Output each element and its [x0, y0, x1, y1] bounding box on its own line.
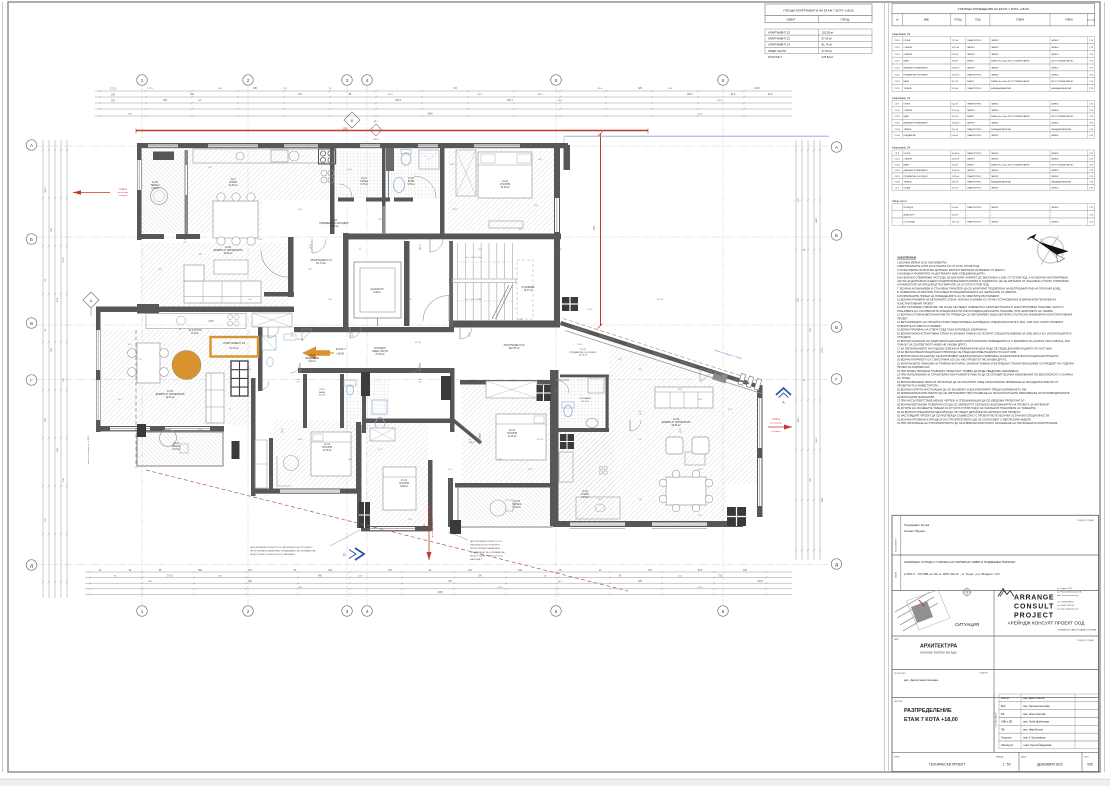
- svg-text:ЛАТЕКС: ЛАТЕКС: [1051, 53, 1059, 56]
- svg-text:21.14: 21.14: [895, 159, 901, 161]
- svg-text:ПАРКЕТ: ПАРКЕТ: [967, 66, 976, 69]
- svg-text:21.24: 21.24: [173, 443, 179, 445]
- svg-text:ЛАТЕКС: ЛАТЕКС: [1051, 73, 1059, 76]
- svg-text:Общи части: Общи части: [892, 199, 907, 203]
- svg-text:6: 6: [722, 609, 725, 614]
- svg-text:ПАРКЕТ: ПАРКЕТ: [967, 158, 976, 161]
- svg-text:3.35 м²: 3.35 м²: [952, 163, 959, 166]
- svg-text:168.1: 168.1: [497, 459, 503, 461]
- svg-text:СПАЛНЯ: СПАЛНЯ: [904, 158, 913, 161]
- svg-text:инж. К. Шоломанов: инж. К. Шоломанов: [1023, 736, 1046, 739]
- svg-text:2.70: 2.70: [1089, 116, 1093, 118]
- svg-text:4.ЗА ВИДА И РАЗМЕРИТЕ НА ДОГРА: 4.ЗА ВИДА И РАЗМЕРИТЕ НА ДОГРАМАТА ВИЖ С…: [897, 272, 986, 276]
- svg-text:ПРЕДВЕРИЕ: ПРЕДВЕРИЕ: [305, 358, 320, 360]
- svg-text:ЛАТЕКС: ЛАТЕКС: [1051, 206, 1059, 209]
- svg-text:21.26: 21.26: [895, 182, 901, 184]
- svg-text:348.5: 348.5: [45, 186, 47, 192]
- svg-text:29.06 м²: 29.06 м²: [952, 66, 960, 69]
- svg-text:ЧЕРТЕЖ: ЧЕРТЕЖ: [894, 701, 902, 703]
- svg-text:гр. София, 1111,: гр. София, 1111,: [1057, 587, 1073, 590]
- svg-text:005: 005: [1087, 763, 1093, 767]
- svg-text:5: 5: [555, 609, 558, 614]
- svg-text:ПАРКЕТ: ПАРКЕТ: [967, 121, 976, 124]
- svg-text:170.5: 170.5: [167, 576, 173, 578]
- svg-text:21.5 БАНЯ: 21.5 БАНЯ: [580, 397, 591, 400]
- svg-text:МЕТАЛНА КОНСТРУКЦИЯ И: МЕТАЛНА КОНСТРУКЦИЯ И: [470, 544, 500, 547]
- svg-text:15.ВСИЧКИ НЕКОНСТРУКТИВНИ СТЕН: 15.ВСИЧКИ НЕКОНСТРУКТИВНИ СТЕНИ И ОКАЧЕН…: [897, 331, 1072, 335]
- svg-text:3.37 м²: 3.37 м²: [952, 186, 959, 189]
- svg-text:ПОД: ПОД: [975, 19, 981, 22]
- svg-text:21.15: 21.15: [319, 389, 325, 391]
- svg-text:ПРЕДВИДЕНИ ЗА СКРИВАНЕ НА: ПРЕДВИДЕНИ ЗА СКРИВАНЕ НА: [470, 551, 505, 554]
- svg-text:3.35 м²: 3.35 м²: [407, 183, 415, 186]
- svg-text:ПАРКЕТ: ПАРКЕТ: [967, 169, 976, 172]
- svg-text:Трендафил Колев: Трендафил Колев: [904, 523, 930, 527]
- svg-text:Апартамент 24: Апартамент 24: [892, 145, 911, 149]
- svg-text:871.5: 871.5: [822, 346, 824, 352]
- svg-text:ЛАТЕКС: ЛАТЕКС: [1051, 46, 1059, 49]
- svg-text:4.40 м²: 4.40 м²: [373, 291, 381, 294]
- svg-text:20.ВСИЧКИ ПАРАПЕТИ СА С ВИСОЧИ: 20.ВСИЧКИ ПАРАПЕТИ СА С ВИСОЧИНА 105 СМ,…: [897, 358, 1007, 362]
- svg-text:14.18 м²: 14.18 м²: [579, 354, 588, 357]
- svg-text:3.17 м²: 3.17 м²: [581, 400, 588, 403]
- svg-text:ЛИСТ: ЛИСТ: [1084, 757, 1090, 759]
- svg-text:тел: 0887 903134,: тел: 0887 903134,: [1057, 605, 1075, 607]
- svg-text:ПРОЕКТАНТА И ИНВЕСТИТОРА;: ПРОЕКТАНТА И ИНВЕСТИТОРА;: [897, 384, 939, 388]
- svg-text:3405: 3405: [437, 592, 443, 594]
- svg-text:ДНЕВНА И ТРАПЕЗАРИЯ: ДНЕВНА И ТРАПЕЗАРИЯ: [904, 121, 929, 124]
- svg-text:1595: 1595: [342, 128, 348, 131]
- svg-text:9.ИЗЧИСЛЕНИТЕ ПЛОЩИ НА ПОМЕЩЕН: 9.ИЗЧИСЛЕНИТЕ ПЛОЩИ НА ПОМЕЩЕНИЯТА СА ПО…: [897, 294, 1000, 298]
- svg-text:инж. Данчо Рангов: инж. Данчо Рангов: [1023, 697, 1045, 700]
- svg-text:57.43 м²: 57.43 м²: [822, 37, 832, 41]
- svg-text:СПАЛНЯ: СПАЛНЯ: [904, 53, 913, 56]
- svg-text:АПАРТАМЕНТ 24: АПАРТАМЕНТ 24: [768, 43, 790, 47]
- svg-text:173.5: 173.5: [147, 88, 153, 90]
- svg-text:90 210: 90 210: [657, 299, 664, 301]
- svg-text:2.70: 2.70: [1089, 187, 1093, 189]
- svg-text:5.06 м: 5.06 м: [772, 417, 780, 421]
- svg-text:АПАРТАМЕНТ 23: АПАРТАМЕНТ 23: [768, 37, 790, 41]
- svg-text:ДНЕВНА И ТРАПЕЗАРИЯ: ДНЕВНА И ТРАПЕЗАРИЯ: [904, 169, 929, 172]
- svg-text:ФАСАДНА МАЗИЛКА: ФАСАДНА МАЗИЛКА: [991, 87, 1011, 90]
- svg-text:Кота пом.: Кота пом.: [1087, 20, 1096, 22]
- svg-text:6.42 м²: 6.42 м²: [191, 332, 199, 335]
- svg-text:26.ДОВЪРШИТЕЛНИТЕ РАБОТИ ДА СЕ: 26.ДОВЪРШИТЕЛНИТЕ РАБОТИ ДА СЕ ИЗПЪЛНЯВА…: [897, 391, 1070, 395]
- svg-text:6.42 м²: 6.42 м²: [952, 103, 959, 106]
- svg-text:172.5: 172.5: [110, 89, 116, 91]
- svg-text:ЛАТЕКС: ЛАТЕКС: [1051, 186, 1059, 189]
- svg-text:ПОДПИС: ПОДПИС: [979, 673, 988, 675]
- svg-text:2.70: 2.70: [1089, 54, 1093, 56]
- svg-text:8. РАЗМЕРИТЕ НА ВРАТИТЕ ПОСОЧЕ: 8. РАЗМЕРИТЕ НА ВРАТИТЕ ПОСОЧЕНИ В СПЕЦИ…: [897, 290, 1017, 294]
- svg-text:23.ПРИ ИЗПЪЛНЕНИЕ НА СТРОИТЕЛН: 23.ПРИ ИЗПЪЛНЕНИЕ НА СТРОИТЕЛНО-МОНТАЖНИ…: [897, 373, 1073, 377]
- svg-text:ЛАТЕКС: ЛАТЕКС: [991, 221, 999, 224]
- svg-text:ФАЯНС Н=2.00м, ВЛ.УСТОЙЧИВ ЛАТ: ФАЯНС Н=2.00м, ВЛ.УСТОЙЧИВ ЛАТЕКС: [991, 60, 1030, 63]
- svg-text:3400: 3400: [427, 114, 433, 116]
- svg-text:ТАВАН: ТАВАН: [1065, 19, 1073, 22]
- svg-text:2.70: 2.70: [1089, 88, 1093, 90]
- svg-text:380.3: 380.3: [537, 94, 543, 96]
- svg-text:1460: 1460: [822, 497, 824, 503]
- svg-text:инж. Рени Смесова: инж. Рени Смесова: [1023, 713, 1046, 716]
- svg-text:АСАНСЬОР: АСАНСЬОР: [904, 213, 916, 216]
- svg-text:115.5: 115.5: [597, 499, 603, 501]
- svg-text:21.15: 21.15: [895, 116, 901, 118]
- svg-text:ДАТА: ДАТА: [1021, 756, 1027, 759]
- svg-text:21.13: 21.13: [895, 54, 901, 56]
- svg-text:142.5: 142.5: [754, 88, 760, 90]
- svg-text:2.70: 2.70: [1089, 129, 1093, 131]
- svg-text:3: 3: [346, 609, 349, 614]
- svg-text:2.70: 2.70: [1089, 104, 1093, 106]
- svg-text:ПЕРФОРИРАНА ЛАМАРИНА, ПРЕДВИДЕ: ПЕРФОРИРАНА ЛАМАРИНА, ПРЕДВИДЕНИ ЗА СКРИ…: [250, 550, 316, 553]
- svg-text:2.70: 2.70: [1089, 222, 1093, 224]
- svg-text:21.22: 21.22: [895, 74, 901, 76]
- svg-text:ФАЯНС: ФАЯНС: [967, 60, 975, 63]
- svg-text:412.9: 412.9: [587, 309, 593, 311]
- svg-text:ВОДОСТОЧНИ ТРЪБИ Ч7.00 (1) НАР: ВОДОСТОЧНИ ТРЪБИ Ч7.00 (1) НАРЕДБА 7: [250, 553, 296, 556]
- svg-text:ОВК и ЕЕ: ОВК и ЕЕ: [1001, 721, 1013, 724]
- svg-text:КОНСТРУКТИВНИЯ ПРОЕКТ;: КОНСТРУКТИВНИЯ ПРОЕКТ;: [897, 301, 935, 305]
- svg-text:ФАЯНС Н=2.00м, ВЛ.УСТОЙЧИВ ЛАТ: ФАЯНС Н=2.00м, ВЛ.УСТОЙЧИВ ЛАТЕКС: [991, 80, 1030, 83]
- svg-text:Апартамент 22: Апартамент 22: [892, 32, 911, 36]
- svg-text:14.44 м²: 14.44 м²: [952, 121, 960, 124]
- svg-text:ЧАСТИ НА ДОГРАМАТА КЪДЕТО ПОДП: ЧАСТИ НА ДОГРАМАТА КЪДЕТО ПОДПРОЗОРЕЧНИЯ…: [897, 279, 1069, 283]
- svg-text:ПРОЕКТНА РАЗРАБОТКА;: ПРОЕКТНА РАЗРАБОТКА;: [897, 365, 930, 369]
- svg-text:ПАРКЕТ: ПАРКЕТ: [967, 109, 976, 112]
- svg-text:1: 1: [141, 609, 144, 614]
- svg-text:16.ВСИЧКИ НАКЛОНИ НА ХИДРОИЗОЛ: 16.ВСИЧКИ НАКЛОНИ НА ХИДРОИЗОЛАЦИОННИЯ С…: [897, 339, 1070, 343]
- svg-text:81.74 м²: 81.74 м²: [316, 261, 326, 265]
- svg-text:848.7: 848.7: [816, 216, 818, 222]
- svg-text:7.27 м²: 7.27 м²: [952, 39, 959, 42]
- svg-text:94 100: 94 100: [415, 342, 422, 344]
- svg-text:21.25: 21.25: [895, 88, 901, 90]
- svg-text:371.5: 371.5: [63, 256, 65, 262]
- svg-text:3.ТОЧНИ МЕРКИ ЗА ВСИЧКИ ДОГРАМ: 3.ТОЧНИ МЕРКИ ЗА ВСИЧКИ ДОГРАМИ, ВРАТИ И…: [897, 268, 1006, 272]
- svg-text:16.17 м²: 16.17 м²: [952, 221, 960, 224]
- svg-text:КУХНЯ: КУХНЯ: [904, 153, 911, 155]
- svg-text:ARRANGE: ARRANGE: [1014, 595, 1054, 602]
- svg-text:14.18 м²: 14.18 м²: [952, 73, 960, 76]
- svg-text:226.5: 226.5: [449, 164, 455, 166]
- svg-text:2.70: 2.70: [1089, 61, 1093, 63]
- svg-text:81.74 м²: 81.74 м²: [822, 43, 832, 47]
- svg-text:2.70: 2.70: [1089, 164, 1093, 166]
- svg-text:ВЪЗЛОЖИТЕЛ: ВЪЗЛОЖИТЕЛ: [896, 537, 898, 552]
- svg-text:ФАЯНС: ФАЯНС: [967, 163, 975, 166]
- svg-text:БАНЯ: БАНЯ: [319, 391, 325, 394]
- svg-text:ВЛ.УСТОЙЧИВ ЛАТЕКС: ВЛ.УСТОЙЧИВ ЛАТЕКС: [1051, 60, 1074, 63]
- svg-text:ГРАНИТОГРЕС: ГРАНИТОГРЕС: [967, 73, 982, 76]
- svg-text:ПЕРФОРИРАНА ЛАМАРИНА,: ПЕРФОРИРАНА ЛАМАРИНА,: [470, 547, 501, 550]
- svg-text:5: 5: [555, 78, 558, 83]
- svg-text:3.07 м²: 3.07 м²: [318, 394, 325, 397]
- svg-text:ГРАНИТОГРЕС: ГРАНИТОГРЕС: [967, 206, 982, 209]
- svg-text:ВОДОСТОЧНИ ТРЪБИ Ч7.00 (1): ВОДОСТОЧНИ ТРЪБИ Ч7.00 (1): [470, 555, 503, 557]
- svg-text:198.7: 198.7: [816, 436, 818, 442]
- svg-text:ПРЕДВЕРИЕ И КОРИДОР: ПРЕДВЕРИЕ И КОРИДОР: [570, 352, 597, 354]
- svg-text:ВиК: ВиК: [1001, 705, 1006, 708]
- svg-text:21.23: 21.23: [895, 81, 901, 83]
- svg-text:ИМЕ: ИМЕ: [924, 19, 930, 22]
- svg-text:ЛАТЕКС: ЛАТЕКС: [1051, 221, 1059, 224]
- svg-text:2: 2: [247, 78, 250, 83]
- svg-text:21.30: 21.30: [895, 135, 901, 137]
- svg-text:12.96 м²: 12.96 м²: [223, 252, 232, 255]
- svg-text:+18.00: +18.00: [336, 352, 345, 356]
- svg-text:ЛАТЕКС: ЛАТЕКС: [1051, 39, 1059, 42]
- svg-text:21.21: 21.21: [895, 176, 901, 178]
- svg-text:ТЕРАСА: ТЕРАСА: [904, 87, 912, 90]
- svg-text:ЛАТЕКС: ЛАТЕКС: [1051, 175, 1059, 178]
- svg-text:27.ПРИ НЕСЪОТВЕТСТВИЕ МЕЖДУ ЧЕ: 27.ПРИ НЕСЪОТВЕТСТВИЕ МЕЖДУ ЧЕРТЕЖ И СПЕ…: [897, 399, 1026, 403]
- svg-text:9ст. x 16.67/ 30см: 9ст. x 16.67/ 30см: [465, 299, 482, 301]
- svg-text:ЛАТЕКС: ЛАТЕКС: [1051, 134, 1059, 137]
- svg-text:21.18: 21.18: [408, 178, 414, 180]
- svg-text:102.55 м²: 102.55 м²: [822, 30, 834, 34]
- svg-text:ОБЕКТ: ОБЕКТ: [896, 571, 898, 578]
- svg-text:141.3: 141.3: [517, 319, 523, 321]
- svg-text:38.5 92: 38.5 92: [537, 439, 545, 441]
- svg-text:3.86 м²: 3.86 м²: [952, 60, 959, 63]
- svg-text:2.70: 2.70: [1089, 110, 1093, 112]
- svg-text:21.17: 21.17: [895, 61, 901, 63]
- svg-text:ОТВОРИТЕ ПО МЯСТО И РАЗМЕР;: ОТВОРИТЕ ПО МЯСТО И РАЗМЕР;: [897, 324, 942, 328]
- svg-text:ПОДПИС / ПЕЧАТ: ПОДПИС / ПЕЧАТ: [1077, 519, 1095, 522]
- svg-text:420.9: 420.9: [297, 439, 303, 441]
- svg-text:379.5: 379.5: [197, 429, 203, 431]
- svg-text:173.5: 173.5: [257, 239, 263, 241]
- svg-text:13.20 м²: 13.20 м²: [952, 158, 960, 161]
- svg-text:до граница на имота: до граница на имота: [432, 518, 434, 538]
- svg-text:11.15 м²: 11.15 м²: [508, 435, 517, 438]
- svg-text:л.арх. Ирена Йорданова: л.арх. Ирена Йорданова: [1023, 744, 1052, 747]
- svg-text:21.24: 21.24: [895, 129, 901, 131]
- svg-text:3.37 м²: 3.37 м²: [360, 183, 368, 186]
- svg-text:ул. Николай Коперник 48,: ул. Николай Коперник 48,: [1057, 590, 1082, 593]
- svg-text:web: www.acproject.bg: web: www.acproject.bg: [1057, 594, 1079, 597]
- svg-text:ЛАТЕКС: ЛАТЕКС: [991, 73, 999, 76]
- svg-text:НА ТРУДА.: НА ТРУДА.: [897, 376, 911, 380]
- svg-text:ЛАТЕКС: ЛАТЕКС: [1051, 66, 1059, 69]
- svg-text:ПЛОЩИ АПАРТАМЕНТИ НА ЕТАЖ 7 К: ПЛОЩИ АПАРТАМЕНТИ НА ЕТАЖ 7 КОТА +18,00: [783, 8, 854, 12]
- svg-text:ОБЩИ ЧАСТИ: ОБЩИ ЧАСТИ: [768, 49, 786, 53]
- svg-text:БАНЯ: БАНЯ: [904, 115, 910, 118]
- svg-text:СКЛАД: СКЛАД: [904, 186, 911, 189]
- svg-text:ЛАТЕКС: ЛАТЕКС: [991, 152, 999, 155]
- svg-text:348.5: 348.5: [798, 416, 800, 422]
- svg-text:2.70: 2.70: [1089, 81, 1093, 83]
- svg-text:142.5: 142.5: [697, 587, 703, 589]
- svg-text:ОБЕКТ: ОБЕКТ: [786, 17, 796, 21]
- svg-text:21.10: 21.10: [582, 491, 588, 493]
- svg-text:ЛАТЕКС: ЛАТЕКС: [1051, 169, 1059, 172]
- svg-text:21.20: 21.20: [895, 170, 901, 172]
- svg-text:до граница: до граница: [770, 423, 782, 425]
- svg-text:6.00 м²: 6.00 м²: [308, 360, 316, 363]
- svg-text:СЪГЛАСУВАЛИ: СЪГЛАСУВАЛИ: [995, 712, 998, 727]
- svg-text:32.ВСИЧКИ ПРОМЕНИ В ПРОЦЕСА НА: 32.ВСИЧКИ ПРОМЕНИ В ПРОЦЕСА НА СТРОИТЕЛС…: [897, 417, 1032, 421]
- svg-text:14.ВСЯКА ПРОМЯНА НА ОТВОР СЛЕД: 14.ВСЯКА ПРОМЯНА НА ОТВОР СЛЕД ТАЗИ ЗАПО…: [897, 328, 988, 332]
- svg-text:КУХНЯ: КУХНЯ: [904, 40, 911, 42]
- svg-text:601.1: 601.1: [717, 100, 723, 102]
- svg-text:168.1: 168.1: [527, 469, 533, 471]
- svg-text:ЛАТЕКС: ЛАТЕКС: [991, 53, 999, 56]
- svg-text:ЛАТЕКС: ЛАТЕКС: [1051, 109, 1059, 112]
- svg-text:308.2: 308.2: [697, 399, 703, 401]
- svg-text:КУХНЯ: КУХНЯ: [904, 104, 911, 106]
- svg-text:63.9: 63.9: [768, 94, 773, 96]
- svg-text:СКЛАД: СКЛАД: [360, 180, 368, 183]
- svg-text:ВЛ.УСТОЙЧИВ ЛАТЕКС: ВЛ.УСТОЙЧИВ ЛАТЕКС: [1051, 80, 1074, 83]
- svg-text:ЛАТЕКС: ЛАТЕКС: [991, 66, 999, 69]
- svg-text:10.48 м²: 10.48 м²: [952, 152, 960, 155]
- svg-text:21.МОНТАЖНИТЕ ПЛАНОВЕ НА ТРАЙН: 21.МОНТАЖНИТЕ ПЛАНОВЕ НА ТРАЙНИ НАСТИЛКИ…: [897, 361, 1074, 365]
- svg-text:на имота: на имота: [119, 195, 129, 197]
- svg-text:1 : 50: 1 : 50: [1003, 763, 1011, 767]
- svg-text:тел: 0878 899822,: тел: 0878 899822,: [1057, 602, 1075, 604]
- svg-text:БАНЯ: БАНЯ: [904, 60, 910, 63]
- svg-text:МАЩАБ: МАЩАБ: [996, 756, 1004, 759]
- svg-text:110.3: 110.3: [697, 469, 703, 471]
- svg-text:ДЕКЕМВРИ 2022: ДЕКЕМВРИ 2022: [1037, 763, 1063, 767]
- svg-text:АРХИТЕКТУРА: АРХИТЕКТУРА: [920, 644, 958, 650]
- svg-text:КОРИДОР: КОРИДОР: [904, 207, 914, 209]
- svg-text:ДЕКОРАТИВНИ ПИЛАСТРИ ОТ МЕТАЛН: ДЕКОРАТИВНИ ПИЛАСТРИ ОТ МЕТАЛНА КОНСТРУК…: [250, 546, 313, 549]
- svg-text:282.2: 282.2: [477, 94, 483, 96]
- svg-text:14.44 м²: 14.44 м²: [165, 396, 174, 399]
- svg-text:ФАСАДНА МАЗИЛКА: ФАСАДНА МАЗИЛКА: [991, 128, 1011, 131]
- svg-text:2: 2: [247, 609, 250, 614]
- svg-text:17.ЗА ИЗПЪЛНЕНИЕТО НА ПОДОВИ С: 17.ЗА ИЗПЪЛНЕНИЕТО НА ПОДОВИ СИФОНИ И РЕ…: [897, 346, 1053, 350]
- svg-text:28.ВСИЧКИ БЕТОНОВИ ПОВЪРХНОСТИ: 28.ВСИЧКИ БЕТОНОВИ ПОВЪРХНОСТИ ДА СЕ ОБР…: [897, 402, 1050, 406]
- svg-text:2.70: 2.70: [1089, 47, 1093, 49]
- svg-text:ПРОЕКТАНТ: ПРОЕКТАНТ: [894, 672, 907, 675]
- svg-text:ГРАНИТОГРЕС: ГРАНИТОГРЕС: [967, 103, 982, 106]
- svg-text:10.48 м²: 10.48 м²: [228, 184, 237, 187]
- svg-text:ДЕКОРАТИВНИ ПИЛАСТРИ ОТ: ДЕКОРАТИВНИ ПИЛАСТРИ ОТ: [470, 540, 503, 543]
- svg-text:СГРАДАТА;: СГРАДАТА;: [897, 335, 912, 339]
- svg-text:БАНЯ: БАНЯ: [904, 80, 910, 83]
- svg-text:ГРАНИТОГРЕС: ГРАНИТОГРЕС: [967, 87, 982, 90]
- svg-text:ТЕХНИЧЕСКИ ПРОЕКТ: ТЕХНИЧЕСКИ ПРОЕКТ: [929, 763, 965, 767]
- svg-text:3.15 м²: 3.15 м²: [952, 128, 959, 131]
- svg-text:11.76 м²: 11.76 м²: [952, 109, 960, 112]
- svg-text:13.20 м²: 13.20 м²: [500, 186, 509, 189]
- svg-text:12.65 м²: 12.65 м²: [952, 175, 960, 178]
- svg-text:ЛАТЕКС: ЛАТЕКС: [991, 158, 999, 161]
- svg-text:ПЛОЩ: ПЛОЩ: [841, 17, 850, 21]
- svg-text:ФАСАДНА МАЗИЛКА: ФАСАДНА МАЗИЛКА: [991, 181, 1011, 184]
- svg-text:УПРАВИТЕЛ: ДЕСИСЛАВА ЧОКОЕВА: УПРАВИТЕЛ: ДЕСИСЛАВА ЧОКОЕВА: [1057, 629, 1096, 632]
- svg-text:21.9 КУХНЯ: 21.9 КУХНЯ: [189, 330, 202, 332]
- svg-text:инж. Иван Вълев: инж. Иван Вълев: [1023, 729, 1043, 732]
- svg-text:25.ВСИЧКИ СКРИТИ ИНСТАЛАЦИИ ДА: 25.ВСИЧКИ СКРИТИ ИНСТАЛАЦИИ ДА СЕ ЗАСНЕМ…: [897, 387, 1027, 391]
- svg-text:НАРЕДБА 7: НАРЕДБА 7: [470, 558, 483, 561]
- svg-text:В: В: [835, 325, 838, 330]
- svg-text:2.70: 2.70: [1089, 214, 1093, 216]
- svg-text:ЛАТЕКС: ЛАТЕКС: [991, 46, 999, 49]
- svg-text:БАНЯ: БАНЯ: [904, 163, 910, 166]
- svg-text:29.06 м²: 29.06 м²: [671, 424, 680, 427]
- svg-text:4.39 м²: 4.39 м²: [151, 187, 159, 190]
- svg-text:2.70: 2.70: [1089, 74, 1093, 76]
- svg-text:ФАСАДНА МАЗИЛКА: ФАСАДНА МАЗИЛКА: [1051, 181, 1071, 184]
- svg-text:93.5: 93.5: [698, 570, 703, 572]
- svg-text:ЛАТЕКС: ЛАТЕКС: [1051, 103, 1059, 106]
- svg-text:ПЛОЩ: ПЛОЩ: [954, 19, 962, 22]
- svg-text:НА ВЛАГАНИТЕ МАТЕРИАЛИ;: НА ВЛАГАНИТЕ МАТЕРИАЛИ;: [897, 395, 935, 399]
- svg-text:ЛАТЕКС: ЛАТЕКС: [991, 169, 999, 172]
- svg-text:ЛАТЕКС: ЛАТЕКС: [991, 186, 999, 189]
- svg-text:ВЛ.УСТОЙЧИВ ЛАТЕКС: ВЛ.УСТОЙЧИВ ЛАТЕКС: [1051, 115, 1074, 118]
- svg-text:Паркоустр.: Паркоустр.: [1001, 744, 1014, 747]
- svg-text:142.5: 142.5: [697, 114, 703, 116]
- svg-text:172.8: 172.8: [387, 159, 393, 161]
- svg-text:АПАРТАМЕНТ 22: АПАРТАМЕНТ 22: [768, 30, 790, 34]
- svg-text:16.17 м²: 16.17 м²: [524, 289, 533, 292]
- svg-text:ФАЯНС: ФАЯНС: [967, 80, 975, 83]
- svg-text:21.18: 21.18: [895, 164, 901, 166]
- svg-text:АРЕЙНДЖ КОНСУЛТ ПРОЕКТ ООД: АРЕЙНДЖ КОНСУЛТ ПРОЕКТ ООД: [1008, 619, 1086, 626]
- svg-text:21.16: 21.16: [895, 122, 901, 124]
- svg-text:21.25: 21.25: [514, 501, 520, 503]
- svg-text:ГРАНИТОГРЕС: ГРАНИТОГРЕС: [967, 175, 982, 178]
- svg-text:№: №: [896, 19, 899, 22]
- svg-text:24.ВСИЧКИ ВЪНШНИ ВРАТИ И ПРОЗО: 24.ВСИЧКИ ВЪНШНИ ВРАТИ И ПРОЗОРЦИ ДА СЕ …: [897, 380, 1059, 384]
- svg-text:ТЕРАСА: ТЕРАСА: [513, 503, 522, 506]
- svg-text:2.70: 2.70: [1089, 182, 1093, 184]
- svg-text:ТЕРАСА: ТЕРАСА: [172, 445, 181, 448]
- svg-text:2.70: 2.70: [1089, 135, 1093, 137]
- svg-text:21.10: 21.10: [895, 40, 901, 42]
- svg-text:100 64: 100 64: [297, 339, 304, 341]
- svg-text:ДНЕВНА И ТРАПЕЗАРИЯ: ДНЕВНА И ТРАПЕЗАРИЯ: [904, 66, 929, 69]
- svg-text:Атанас Паунов: Атанас Паунов: [904, 529, 925, 533]
- svg-text:ЛАТЕКС: ЛАТЕКС: [991, 134, 999, 137]
- svg-text:12.65 м²: 12.65 м²: [329, 225, 338, 228]
- svg-text:12.ВСИЧКИ СТОМАНОБЕТОННИ РАБОТ: 12.ВСИЧКИ СТОМАНОБЕТОННИ РАБОТИ ТРЯБВА Д…: [897, 313, 1072, 317]
- svg-text:102.55 м²: 102.55 м²: [508, 346, 519, 350]
- svg-text:ФАЯНС Н=2.00м, ВЛ.УСТОЙЧИВ ЛАТ: ФАЯНС Н=2.00м, ВЛ.УСТОЙЧИВ ЛАТЕКС: [991, 163, 1030, 166]
- svg-text:PROJECT: PROJECT: [1014, 613, 1054, 620]
- svg-text:ФАСАДНА МАЗИЛКА: ФАСАДНА МАЗИЛКА: [1051, 87, 1071, 90]
- svg-text:ТЕРАСА: ТЕРАСА: [904, 128, 912, 131]
- svg-text:29.КОТИТЕ НА ОКАЧЕНИТЕ ТАВАНИ: 29.КОТИТЕ НА ОКАЧЕНИТЕ ТАВАНИ СА ОТ КОТА…: [897, 406, 1036, 410]
- svg-text:2.70: 2.70: [1089, 153, 1093, 155]
- svg-text:ПЛАНЪТ ЗА СЪОТВЕТНОТО НИВО НЕ: ПЛАНЪТ ЗА СЪОТВЕТНОТО НИВО НЕ УКАЗВА ДРУ…: [897, 343, 967, 347]
- svg-text:ЕТАЖ 7 КОТА +18,00: ЕТАЖ 7 КОТА +18,00: [904, 717, 958, 723]
- svg-text:9ст. x 16.67/ 30см: 9ст. x 16.67/ 30см: [466, 257, 483, 259]
- svg-text:arrange.cp@gmail.com: arrange.cp@gmail.com: [1057, 607, 1079, 610]
- svg-text:ГРАНИТОГРЕС: ГРАНИТОГРЕС: [967, 39, 982, 42]
- svg-text:13.БЕТОНИРАНЕТО НА ПЛОЧИТЕ СТА: 13.БЕТОНИРАНЕТО НА ПЛОЧИТЕ СТАВА СЛЕД ПИ…: [897, 320, 1063, 324]
- svg-text:1: 1: [141, 78, 144, 83]
- svg-text:ПБ: ПБ: [1001, 729, 1005, 732]
- svg-text:ГРАНИТОГРЕС: ГРАНИТОГРЕС: [967, 186, 982, 189]
- svg-text:ФАЗА: ФАЗА: [894, 756, 900, 759]
- svg-text:Геодезия: Геодезия: [1001, 736, 1012, 739]
- svg-text:ЕТАЖ 7: ЕТАЖ 7: [336, 347, 346, 351]
- svg-text:ПАРКЕТ: ПАРКЕТ: [967, 53, 976, 56]
- svg-text:ЛАТЕКС: ЛАТЕКС: [991, 121, 999, 124]
- svg-text:ЛАТЕКС: ЛАТЕКС: [1051, 158, 1059, 161]
- svg-text:2.70: 2.70: [1089, 170, 1093, 172]
- svg-text:5.00 м: 5.00 м: [119, 188, 127, 191]
- svg-text:(ПЛАНОВЕ, РАЗРЕЗИ, ФАСАДИ ): (ПЛАНОВЕ, РАЗРЕЗИ, ФАСАДИ ): [920, 652, 958, 655]
